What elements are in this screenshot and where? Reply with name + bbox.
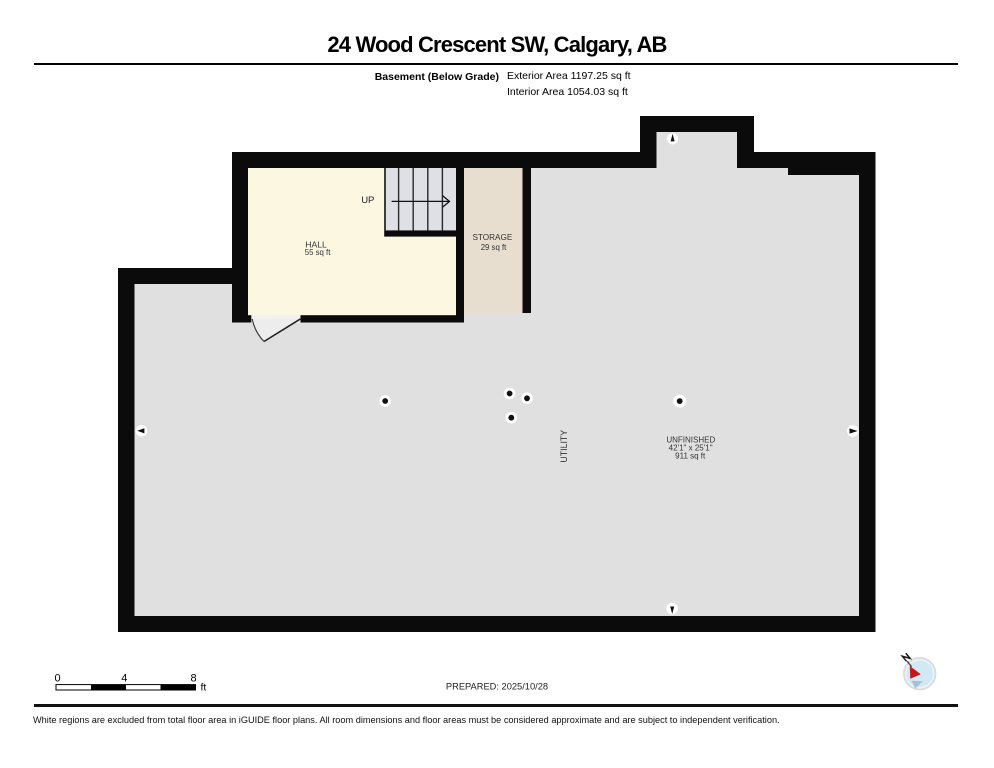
svg-text:0: 0 bbox=[54, 673, 60, 685]
svg-text:UTILITY: UTILITY bbox=[559, 430, 569, 463]
svg-text:UP: UP bbox=[361, 195, 374, 206]
svg-text:4: 4 bbox=[121, 673, 127, 685]
svg-text:8: 8 bbox=[190, 673, 196, 685]
svg-text:55 sq ft: 55 sq ft bbox=[305, 248, 331, 257]
svg-text:PREPARED: 2025/10/28: PREPARED: 2025/10/28 bbox=[446, 681, 548, 691]
svg-text:ft: ft bbox=[201, 682, 207, 694]
svg-text:STORAGE: STORAGE bbox=[472, 233, 512, 242]
svg-text:29 sq ft: 29 sq ft bbox=[481, 243, 507, 252]
svg-text:911 sq ft: 911 sq ft bbox=[675, 451, 706, 460]
